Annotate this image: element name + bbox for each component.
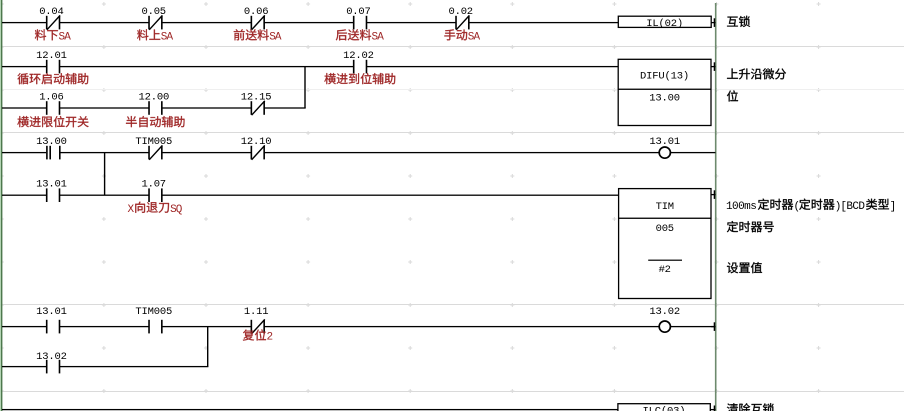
svg-text:1.06: 1.06 xyxy=(39,92,64,104)
svg-text:13.01: 13.01 xyxy=(36,306,67,318)
svg-text:13.00: 13.00 xyxy=(36,136,67,148)
svg-text:13.00: 13.00 xyxy=(649,93,680,105)
svg-text:SA: SA xyxy=(161,31,174,43)
svg-text:0.07: 0.07 xyxy=(346,6,371,18)
svg-text:1.07: 1.07 xyxy=(142,179,167,191)
svg-text:SA: SA xyxy=(269,31,282,43)
svg-text:IL(02): IL(02) xyxy=(646,18,683,30)
svg-text:TIM005: TIM005 xyxy=(135,136,172,148)
svg-text:12.00: 12.00 xyxy=(139,92,170,104)
svg-text:TIM: TIM xyxy=(656,201,675,213)
svg-text:13.02: 13.02 xyxy=(649,306,680,318)
svg-text:SQ: SQ xyxy=(170,204,183,216)
svg-text:0.06: 0.06 xyxy=(244,6,269,18)
svg-text:(: ( xyxy=(794,201,801,213)
svg-text:1.11: 1.11 xyxy=(244,306,269,318)
svg-text:12.02: 12.02 xyxy=(343,50,374,62)
svg-text:ILC(03): ILC(03) xyxy=(643,406,686,411)
svg-text:13.02: 13.02 xyxy=(36,351,67,363)
svg-text:100ms: 100ms xyxy=(726,201,757,213)
svg-text:13.01: 13.01 xyxy=(36,179,67,191)
svg-text:0.02: 0.02 xyxy=(449,6,474,18)
svg-text:12.10: 12.10 xyxy=(241,136,272,148)
svg-text:SA: SA xyxy=(468,31,481,43)
svg-text:0.04: 0.04 xyxy=(39,6,64,18)
svg-text:#2: #2 xyxy=(659,264,671,276)
svg-text:TIM005: TIM005 xyxy=(135,306,172,318)
svg-text:DIFU(13): DIFU(13) xyxy=(640,70,689,82)
svg-text:005: 005 xyxy=(656,223,675,235)
svg-text:0.05: 0.05 xyxy=(142,6,167,18)
svg-text:X: X xyxy=(128,204,135,216)
svg-text:]: ] xyxy=(890,201,897,213)
svg-text:12.15: 12.15 xyxy=(241,92,272,104)
svg-text:SA: SA xyxy=(59,31,72,43)
svg-text:2: 2 xyxy=(267,332,274,344)
svg-text:SA: SA xyxy=(372,31,385,43)
svg-text:12.01: 12.01 xyxy=(36,50,67,62)
svg-text:13.01: 13.01 xyxy=(649,136,680,148)
svg-text:[BCD: [BCD xyxy=(840,201,865,213)
